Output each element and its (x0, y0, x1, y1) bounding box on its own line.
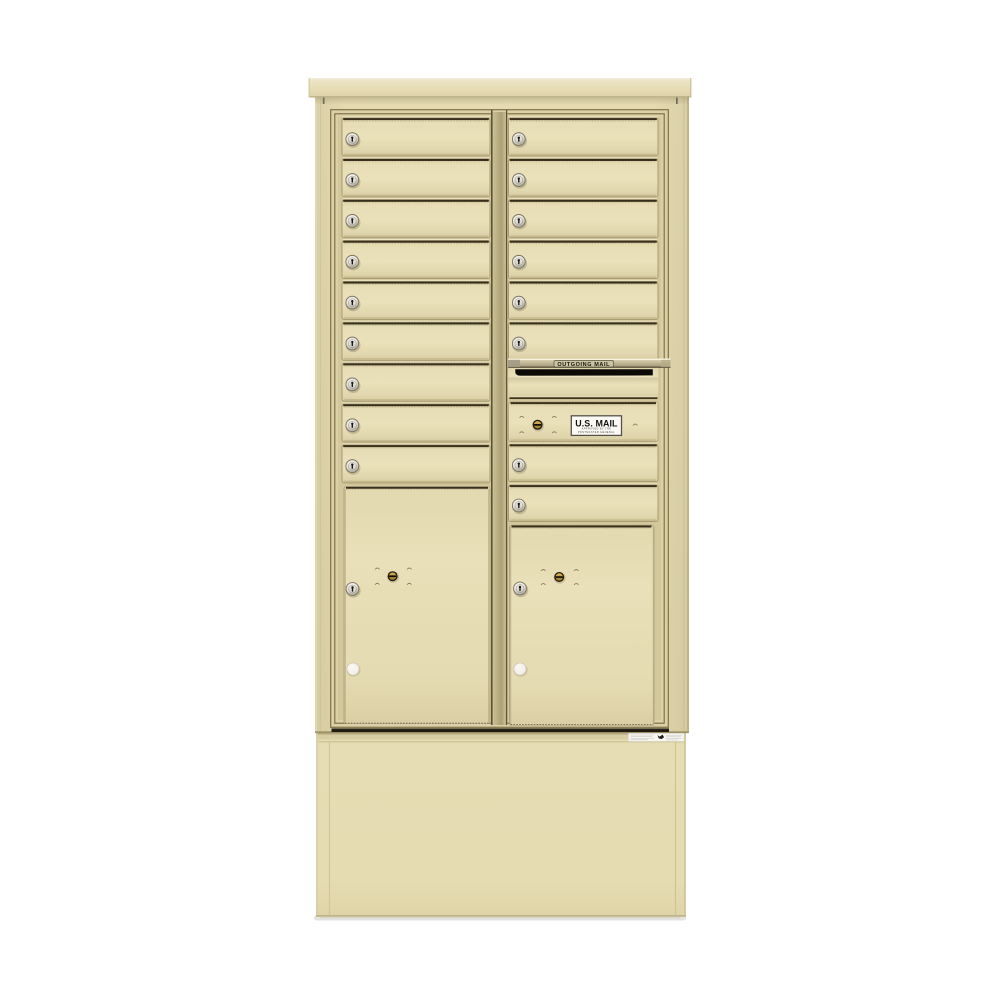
svg-text:OUTGOING MAIL: OUTGOING MAIL (557, 362, 610, 368)
svg-text:POSTMASTER GENERAL: POSTMASTER GENERAL (578, 431, 615, 434)
